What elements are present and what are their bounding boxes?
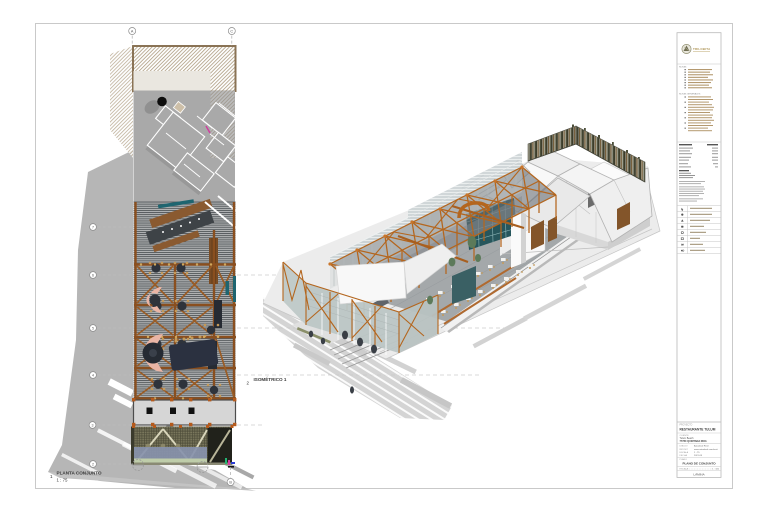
- svg-text:ESCALA: ESCALA: [680, 467, 689, 470]
- svg-text:Autodesk Revit: Autodesk Revit: [694, 444, 709, 447]
- svg-text:6: 6: [92, 273, 94, 277]
- svg-text:www.autodesk.com/revit: www.autodesk.com/revit: [694, 448, 718, 451]
- svg-text:5: 5: [92, 326, 94, 330]
- svg-text:ESCALA: ESCALA: [680, 451, 689, 454]
- svg-text:77780 QUINTANA ROO.: 77780 QUINTANA ROO.: [680, 440, 708, 443]
- svg-text:2: 2: [92, 462, 94, 466]
- svg-text:PLANO DE CONJUNTO: PLANO DE CONJUNTO: [682, 461, 716, 465]
- svg-text:PLANO: PLANO: [680, 458, 688, 461]
- svg-text:PROYECTO: PROYECTO: [680, 425, 693, 427]
- svg-text:DIBUJO: DIBUJO: [680, 445, 688, 447]
- svg-text:A: A: [131, 30, 134, 34]
- svg-text:1 : 75: 1 : 75: [694, 452, 700, 454]
- svg-text:PLANTA CONJUNTO: PLANTA CONJUNTO: [57, 471, 103, 476]
- svg-text:1 : 100: 1 : 100: [712, 468, 719, 470]
- svg-text:ISOMÉTRICO 1: ISOMÉTRICO 1: [254, 375, 287, 382]
- svg-text:RESTAURANTE TULUM: RESTAURANTE TULUM: [680, 427, 716, 431]
- svg-text:4: 4: [92, 373, 94, 377]
- svg-text:TRILOBITA: TRILOBITA: [693, 47, 711, 51]
- svg-text:FECHA: FECHA: [680, 454, 688, 457]
- svg-text:LÁMINA: LÁMINA: [693, 472, 704, 476]
- svg-text:7: 7: [92, 225, 94, 229]
- svg-text:1 : 75: 1 : 75: [57, 478, 69, 483]
- svg-text:3: 3: [92, 423, 94, 427]
- svg-text:NOTAS GENERALES: NOTAS GENERALES: [679, 93, 701, 96]
- svg-text:2021.09: 2021.09: [694, 455, 703, 457]
- svg-text:C: C: [230, 30, 233, 34]
- svg-text:REVISÓ: REVISÓ: [680, 448, 689, 451]
- svg-text:1: 1: [50, 474, 53, 479]
- svg-text:NOTAS: NOTAS: [679, 66, 687, 69]
